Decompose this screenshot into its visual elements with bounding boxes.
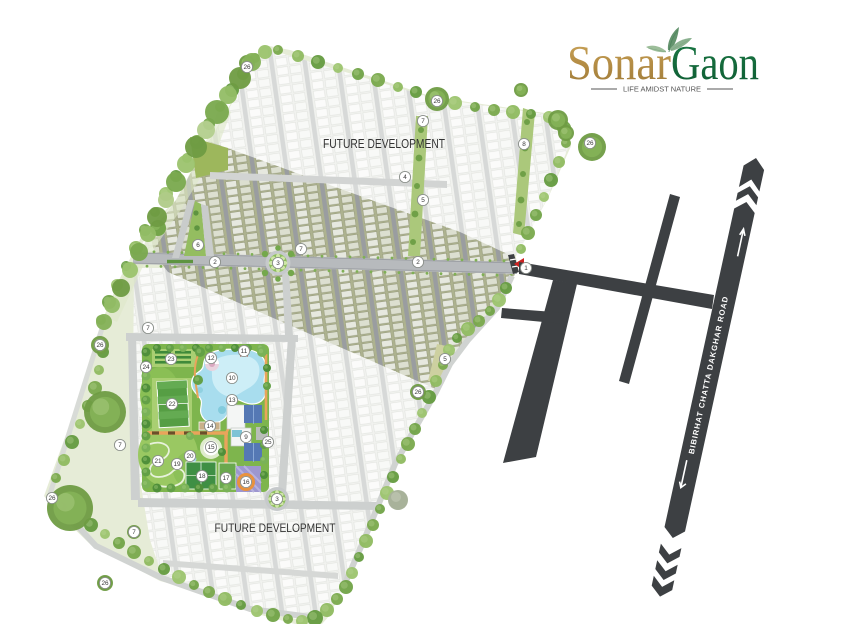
svg-text:23: 23 (167, 356, 175, 363)
svg-text:16: 16 (242, 479, 250, 486)
svg-text:10: 10 (228, 375, 236, 382)
svg-text:7: 7 (146, 325, 150, 332)
svg-text:12: 12 (207, 355, 215, 362)
svg-text:Gaon: Gaon (671, 35, 759, 90)
svg-text:15: 15 (207, 444, 215, 451)
svg-text:1: 1 (524, 265, 528, 272)
svg-text:17: 17 (222, 475, 230, 482)
svg-text:24: 24 (142, 364, 150, 371)
svg-text:5: 5 (443, 356, 447, 363)
svg-text:26: 26 (586, 140, 594, 147)
svg-text:7: 7 (299, 246, 303, 253)
svg-text:8: 8 (522, 141, 526, 148)
svg-text:25: 25 (264, 439, 272, 446)
svg-text:21: 21 (154, 458, 162, 465)
svg-text:11: 11 (241, 348, 248, 355)
svg-text:3: 3 (275, 496, 279, 503)
svg-text:26: 26 (96, 342, 104, 349)
svg-text:26: 26 (414, 389, 422, 396)
svg-text:2: 2 (416, 259, 420, 266)
svg-text:20: 20 (186, 453, 194, 460)
svg-text:26: 26 (101, 580, 109, 587)
svg-text:19: 19 (173, 461, 181, 468)
svg-text:6: 6 (196, 242, 200, 249)
svg-text:14: 14 (206, 423, 214, 430)
svg-text:9: 9 (244, 434, 248, 441)
svg-text:7: 7 (421, 118, 425, 125)
svg-text:5: 5 (421, 197, 425, 204)
svg-text:2: 2 (213, 259, 217, 266)
svg-text:4: 4 (403, 174, 407, 181)
svg-text:FUTURE DEVELOPMENT: FUTURE DEVELOPMENT (215, 521, 336, 535)
svg-text:26: 26 (243, 64, 251, 71)
svg-text:3: 3 (276, 260, 280, 267)
svg-text:13: 13 (228, 397, 236, 404)
svg-text:26: 26 (48, 495, 56, 502)
svg-text:22: 22 (168, 401, 176, 408)
svg-text:26: 26 (433, 98, 441, 105)
svg-text:7: 7 (118, 442, 122, 449)
svg-text:7: 7 (132, 529, 136, 536)
svg-text:LIFE AMIDST NATURE: LIFE AMIDST NATURE (623, 85, 701, 94)
svg-text:FUTURE DEVELOPMENT: FUTURE DEVELOPMENT (323, 137, 445, 151)
svg-text:18: 18 (198, 473, 206, 480)
svg-text:Sonar: Sonar (567, 35, 671, 90)
